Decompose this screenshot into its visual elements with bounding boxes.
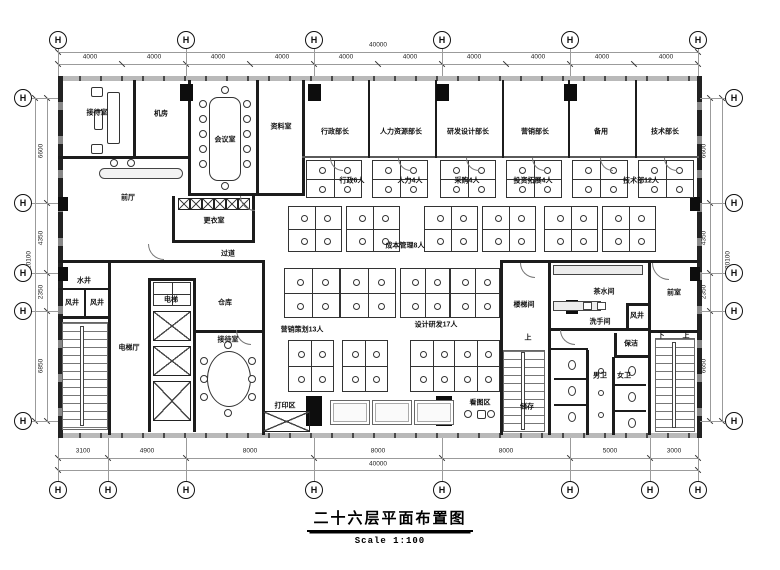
chair xyxy=(441,351,448,358)
chair xyxy=(485,376,492,383)
chair xyxy=(200,357,208,365)
cabinet xyxy=(414,400,454,425)
interior-wall xyxy=(196,330,262,333)
sink xyxy=(597,302,606,310)
chair xyxy=(243,115,251,123)
desk-cluster xyxy=(450,268,500,318)
column xyxy=(58,267,68,281)
grid-bubble: H xyxy=(433,31,451,49)
column xyxy=(436,84,449,101)
room-label-cost_staff: 成本管理8人 xyxy=(386,243,425,250)
column xyxy=(308,84,321,101)
page-title: 二十六层平面布置图 xyxy=(307,507,472,532)
interior-wall xyxy=(148,278,151,432)
dim-line xyxy=(442,438,443,482)
column xyxy=(690,267,700,281)
chair xyxy=(519,167,526,174)
chair xyxy=(518,238,525,245)
chair xyxy=(487,410,495,418)
desk-cluster xyxy=(454,340,500,392)
dim-line xyxy=(698,438,699,482)
grid-bubble: H xyxy=(433,481,451,499)
interior-wall xyxy=(648,330,698,333)
interior-wall xyxy=(58,288,108,290)
grid-bubble: H xyxy=(177,481,195,499)
chair xyxy=(484,303,491,310)
chair xyxy=(224,409,232,417)
side-table xyxy=(477,410,486,419)
interior-wall xyxy=(551,348,588,350)
chair xyxy=(453,186,460,193)
room-label-lobby: 前厅 xyxy=(121,195,135,202)
stall-partition xyxy=(554,404,586,406)
column xyxy=(564,84,577,101)
chair xyxy=(127,159,135,167)
interior-wall xyxy=(108,260,111,435)
room-label-tech_dir: 技术部长 xyxy=(651,129,679,136)
chair xyxy=(359,215,366,222)
dim-label: 4350 xyxy=(701,231,708,245)
locker xyxy=(226,198,238,210)
dim-label: 4000 xyxy=(83,54,97,61)
chair xyxy=(319,351,326,358)
floor-plan-sheet: 接待室机房会议室资料室前厅更衣室过道行政部长人力资源部长研发设计部长营销部长备用… xyxy=(0,0,780,570)
interior-wall xyxy=(172,196,175,243)
dim-line xyxy=(35,98,36,421)
chair xyxy=(434,303,441,310)
chair xyxy=(378,303,385,310)
chair xyxy=(298,351,305,358)
interior-wall xyxy=(172,240,254,243)
room-label-air_shaft: 风井 xyxy=(90,300,104,307)
dim-line xyxy=(710,98,711,421)
stair-stringer xyxy=(80,326,84,426)
interior-wall xyxy=(193,278,196,432)
desk-cluster xyxy=(482,206,536,252)
locker xyxy=(178,198,190,210)
elevator-car xyxy=(153,381,191,421)
chair xyxy=(373,351,380,358)
dim-line xyxy=(58,458,698,459)
dim-line xyxy=(108,438,109,482)
sofa xyxy=(107,92,120,144)
office-front-glass xyxy=(302,156,699,158)
room-label-vestibule: 前室 xyxy=(667,290,681,297)
scale-label: Scale 1:100 xyxy=(0,536,780,546)
chair xyxy=(462,303,469,310)
dim-label: 5000 xyxy=(603,448,617,455)
exterior-wall xyxy=(58,76,702,81)
dim-line xyxy=(722,98,723,421)
chair xyxy=(638,238,645,245)
chair xyxy=(615,215,622,222)
basin xyxy=(598,412,604,418)
grid-bubble: H xyxy=(14,89,32,107)
dim-label: 4000 xyxy=(467,54,481,61)
armchair xyxy=(91,87,103,97)
dim-line xyxy=(186,438,187,482)
cabinet xyxy=(330,400,370,425)
door-arc xyxy=(148,244,164,260)
print-table xyxy=(263,411,310,432)
reception-counter xyxy=(99,168,183,179)
chair xyxy=(453,167,460,174)
toilet xyxy=(628,392,636,402)
grid-bubble: H xyxy=(725,194,743,212)
chair xyxy=(353,279,360,286)
desk-cluster xyxy=(342,340,388,392)
dim-line xyxy=(570,48,571,76)
room-label-changing: 更衣室 xyxy=(204,218,225,225)
interior-wall xyxy=(614,333,617,357)
stall-partition xyxy=(614,410,646,412)
chair xyxy=(410,186,417,193)
chair xyxy=(344,167,351,174)
room-label-storage: 储存 xyxy=(520,404,534,411)
chair xyxy=(301,215,308,222)
dim-line xyxy=(31,98,58,99)
chair xyxy=(460,215,467,222)
stair-stringer xyxy=(672,342,676,428)
chair xyxy=(200,393,208,401)
room-label-corridor: 过道 xyxy=(221,251,235,258)
interior-wall xyxy=(614,355,648,358)
chair xyxy=(519,186,526,193)
dim-line xyxy=(700,203,726,204)
column xyxy=(690,197,700,211)
basin xyxy=(598,390,604,396)
room-label-design_staff: 设计研发17人 xyxy=(415,322,458,329)
chair xyxy=(495,238,502,245)
chair xyxy=(420,376,427,383)
interior-wall xyxy=(612,357,615,435)
title-block: 二十六层平面布置图 Scale 1:100 xyxy=(0,507,780,546)
grid-bubble: H xyxy=(177,31,195,49)
room-label-invest_staff: 投资拓展4人 xyxy=(514,178,553,185)
toilet xyxy=(568,386,576,396)
locker xyxy=(214,198,226,210)
dim-label: 4000 xyxy=(659,54,673,61)
chair xyxy=(464,376,471,383)
room-label-up: 上 xyxy=(683,333,690,340)
dim-line xyxy=(700,311,726,312)
grid-bubble: H xyxy=(725,412,743,430)
room-label-proc_staff: 采购4人 xyxy=(455,178,480,185)
dim-line xyxy=(314,438,315,482)
dim-line xyxy=(31,203,58,204)
room-label-meeting: 会议室 xyxy=(215,137,236,144)
room-label-cleaning: 保洁 xyxy=(624,341,638,348)
chair xyxy=(248,393,256,401)
dim-label: 4000 xyxy=(403,54,417,61)
chair xyxy=(243,160,251,168)
chair xyxy=(464,410,472,418)
grid-bubble: H xyxy=(305,481,323,499)
chair xyxy=(651,167,658,174)
dim-label: 2350 xyxy=(38,285,45,299)
desk-cluster xyxy=(410,340,456,392)
room-label-air_shaft: 风井 xyxy=(630,313,644,320)
interior-wall xyxy=(502,80,504,158)
interior-wall xyxy=(58,156,136,159)
chair xyxy=(437,215,444,222)
counter xyxy=(553,301,601,311)
grid-bubble: H xyxy=(49,481,67,499)
desk-cluster xyxy=(544,206,598,252)
chair xyxy=(359,238,366,245)
room-label-elevator: 电梯 xyxy=(164,297,178,304)
dim-label: 8000 xyxy=(499,448,513,455)
dim-line xyxy=(698,48,699,76)
chair xyxy=(221,86,229,94)
door-arc xyxy=(652,263,669,280)
interior-wall xyxy=(133,156,191,159)
chair xyxy=(484,279,491,286)
chair xyxy=(199,100,207,108)
dim-line xyxy=(650,438,651,482)
room-label-reception: 接待室 xyxy=(218,337,239,344)
oval-table xyxy=(207,351,251,407)
room-label-air_shaft: 风井 xyxy=(65,300,79,307)
desk-cluster xyxy=(288,206,342,252)
interior-wall xyxy=(626,303,629,330)
chair xyxy=(199,145,207,153)
chair xyxy=(319,186,326,193)
room-label-tea_room: 茶水间 xyxy=(594,289,615,296)
chair xyxy=(485,351,492,358)
interior-wall xyxy=(368,80,370,158)
desk-cluster xyxy=(572,160,628,198)
chair xyxy=(297,279,304,286)
dim-line xyxy=(58,438,59,482)
stair-stringer xyxy=(521,352,525,430)
chair xyxy=(420,351,427,358)
desk-cluster xyxy=(400,268,450,318)
grid-bubble: H xyxy=(14,194,32,212)
toilet xyxy=(568,412,576,422)
stair-flight xyxy=(62,322,108,430)
interior-wall xyxy=(148,278,196,281)
chair xyxy=(651,186,658,193)
chair xyxy=(110,159,118,167)
chair xyxy=(464,351,471,358)
elevator-car xyxy=(153,346,191,376)
interior-wall xyxy=(58,260,265,263)
room-label-tech_staff: 技术部12人 xyxy=(623,178,659,185)
dim-line xyxy=(442,48,443,76)
chair xyxy=(437,238,444,245)
chair xyxy=(585,167,592,174)
chair xyxy=(610,186,617,193)
grid-bubble: H xyxy=(99,481,117,499)
grid-bubble: H xyxy=(14,264,32,282)
interior-wall xyxy=(84,290,86,317)
room-label-admin_dir: 行政部长 xyxy=(321,129,349,136)
dim-label: 4000 xyxy=(211,54,225,61)
dim-label: 3100 xyxy=(76,448,90,455)
cabinet xyxy=(372,400,412,425)
dim-label: 4000 xyxy=(339,54,353,61)
chair xyxy=(580,215,587,222)
chair xyxy=(248,357,256,365)
dim-label: 6600 xyxy=(701,143,708,157)
chair xyxy=(352,351,359,358)
dim-line xyxy=(47,98,48,421)
desk-cluster xyxy=(424,206,478,252)
chair xyxy=(319,167,326,174)
chair xyxy=(322,279,329,286)
counter xyxy=(553,265,643,275)
chair xyxy=(385,186,392,193)
room-label-archive: 资料室 xyxy=(271,124,292,131)
room-label-womens: 女卫 xyxy=(617,373,631,380)
dim-label: 6850 xyxy=(38,359,45,373)
room-label-mkt_staff: 营销策划13人 xyxy=(281,327,324,334)
dim-label: 40000 xyxy=(369,42,387,49)
dim-line xyxy=(31,273,58,274)
column xyxy=(58,197,68,211)
stall-partition xyxy=(614,384,646,386)
interior-wall xyxy=(262,260,265,435)
room-label-hr_staff: 人力4人 xyxy=(398,178,423,185)
chair xyxy=(544,186,551,193)
dim-label: 4000 xyxy=(595,54,609,61)
chair xyxy=(199,115,207,123)
interior-wall xyxy=(635,80,637,158)
chair xyxy=(324,238,331,245)
dim-label: 4000 xyxy=(147,54,161,61)
chair xyxy=(200,375,208,383)
dim-label: 6650 xyxy=(701,359,708,373)
chair xyxy=(324,215,331,222)
dim-line xyxy=(186,48,187,76)
grid-bubble: H xyxy=(725,89,743,107)
dim-line xyxy=(58,470,698,471)
chair xyxy=(297,303,304,310)
chair xyxy=(243,130,251,138)
desk-cluster xyxy=(340,268,396,318)
chair xyxy=(373,376,380,383)
interior-wall xyxy=(586,350,589,435)
toilet xyxy=(628,418,636,428)
dim-label: 8000 xyxy=(243,448,257,455)
dim-line xyxy=(700,421,726,422)
room-label-mkt_dir: 营销部长 xyxy=(521,129,549,136)
grid-bubble: H xyxy=(561,481,579,499)
room-label-elev_hall: 电梯厅 xyxy=(119,345,140,352)
chair xyxy=(434,279,441,286)
room-label-down: 下 xyxy=(658,333,665,340)
interior-wall xyxy=(626,303,648,306)
room-label-print_area: 打印区 xyxy=(275,403,296,410)
chair xyxy=(243,100,251,108)
chair xyxy=(221,182,229,190)
dim-line xyxy=(58,48,59,76)
chair xyxy=(382,215,389,222)
dim-label: 2350 xyxy=(701,285,708,299)
interior-wall xyxy=(133,80,136,158)
locker xyxy=(190,198,202,210)
grid-bubble: H xyxy=(14,302,32,320)
dim-line xyxy=(700,273,726,274)
floor-plan: 接待室机房会议室资料室前厅更衣室过道行政部长人力资源部长研发设计部长营销部长备用… xyxy=(0,0,780,570)
armchair xyxy=(91,144,103,154)
interior-wall xyxy=(58,316,111,319)
chair xyxy=(322,303,329,310)
dim-label: 8000 xyxy=(371,448,385,455)
door-arc xyxy=(560,330,575,345)
chair xyxy=(478,186,485,193)
dim-line xyxy=(314,48,315,76)
dim-label: 6600 xyxy=(38,143,45,157)
chair xyxy=(557,238,564,245)
chair xyxy=(462,279,469,286)
chair xyxy=(580,238,587,245)
chair xyxy=(441,376,448,383)
room-label-water_shaft: 水井 xyxy=(77,278,91,285)
chair xyxy=(518,215,525,222)
dim-line xyxy=(700,98,726,99)
room-label-warehouse: 仓库 xyxy=(218,300,232,307)
grid-bubble: H xyxy=(689,31,707,49)
toilet xyxy=(568,360,576,370)
dim-line xyxy=(31,311,58,312)
locker xyxy=(202,198,214,210)
chair xyxy=(615,238,622,245)
chair xyxy=(344,186,351,193)
room-label-spare: 备用 xyxy=(594,129,608,136)
exterior-wall xyxy=(697,76,702,438)
room-label-hr_dir: 人力资源部长 xyxy=(380,129,422,136)
room-label-mens: 男卫 xyxy=(593,373,607,380)
chair xyxy=(319,376,326,383)
chair xyxy=(243,145,251,153)
exterior-wall xyxy=(58,433,702,438)
chair xyxy=(585,186,592,193)
room-label-stair_room: 楼梯间 xyxy=(514,302,535,309)
elevator-car xyxy=(153,311,191,341)
dim-label: 3000 xyxy=(667,448,681,455)
grid-bubble: H xyxy=(14,412,32,430)
room-label-admin_staff: 行政6人 xyxy=(340,178,365,185)
grid-bubble: H xyxy=(689,481,707,499)
desk-cluster xyxy=(284,268,340,318)
interior-wall xyxy=(256,80,259,196)
interior-wall xyxy=(302,80,305,196)
chair xyxy=(412,303,419,310)
dim-label: 40000 xyxy=(369,461,387,468)
dim-line xyxy=(570,438,571,482)
grid-bubble: H xyxy=(49,31,67,49)
chair xyxy=(385,167,392,174)
room-label-reception: 接待室 xyxy=(87,110,108,117)
grid-bubble: H xyxy=(305,31,323,49)
room-label-up: 上 xyxy=(525,335,532,342)
desk-cluster xyxy=(288,340,334,392)
chair xyxy=(352,376,359,383)
chair xyxy=(460,238,467,245)
grid-bubble: H xyxy=(641,481,659,499)
dim-label: 4900 xyxy=(140,448,154,455)
door-arc xyxy=(520,263,535,278)
chair xyxy=(676,186,683,193)
chair xyxy=(353,303,360,310)
room-label-machine: 机房 xyxy=(154,111,168,118)
grid-bubble: H xyxy=(725,302,743,320)
chair xyxy=(298,376,305,383)
grid-bubble: H xyxy=(561,31,579,49)
dim-label: 4350 xyxy=(38,231,45,245)
